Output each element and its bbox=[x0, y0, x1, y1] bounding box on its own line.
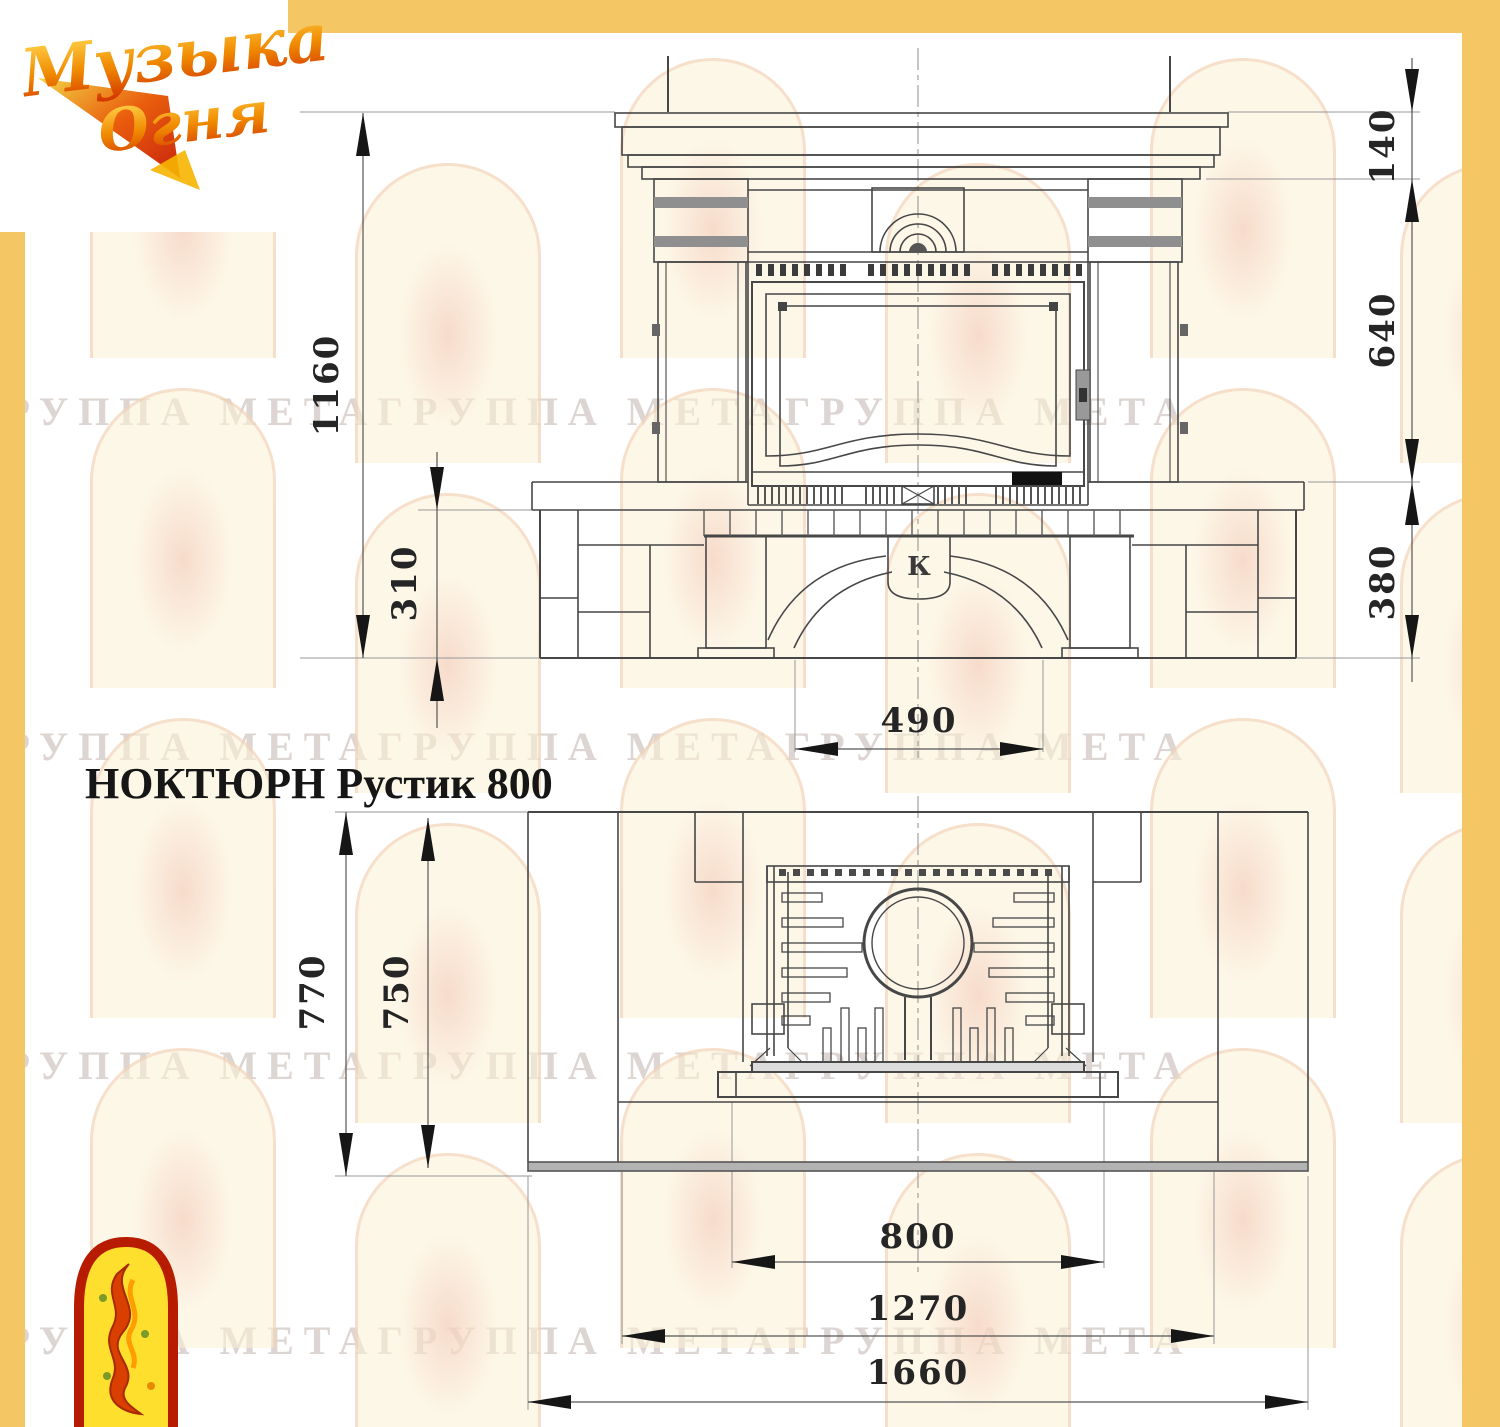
pilasters bbox=[652, 262, 1188, 482]
dim-inner-depth: 750 bbox=[377, 954, 417, 1031]
dim-opening-width: 490 bbox=[881, 701, 958, 741]
ash-lip bbox=[1012, 472, 1062, 485]
flame-arch-logo bbox=[73, 1236, 179, 1427]
dimension-arrows bbox=[339, 69, 1419, 1409]
flue-circle bbox=[864, 889, 972, 997]
keystone-mark: К bbox=[907, 552, 931, 582]
plan-front-step bbox=[528, 1162, 1308, 1171]
dimension-lines bbox=[346, 58, 1412, 1402]
dim-overall-width: 1660 bbox=[867, 1353, 970, 1393]
chimney-lines bbox=[668, 56, 1170, 112]
page: ГРУППА МЕТАГРУППА МЕТАГРУППА МЕТА ГРУППА… bbox=[0, 0, 1500, 1427]
dim-opening-zone-height: 640 bbox=[1363, 292, 1403, 369]
mantel-shelf bbox=[615, 113, 1228, 179]
dim-shelf-band-height: 140 bbox=[1363, 108, 1403, 185]
dim-firebox-width: 800 bbox=[880, 1217, 957, 1257]
dim-hearth-zone-height: 380 bbox=[1363, 544, 1403, 621]
drawing-title: НОКТЮРН Рустик 800 bbox=[85, 758, 553, 809]
dim-outer-depth: 770 bbox=[293, 954, 333, 1031]
frame-band-right bbox=[1462, 0, 1500, 1427]
dim-total-height: 1160 bbox=[307, 334, 347, 437]
frame-band-left bbox=[0, 228, 25, 1427]
dim-base-height: 310 bbox=[385, 545, 425, 622]
brand-logo: Музыка Огня bbox=[0, 0, 288, 232]
firebox-insert bbox=[748, 262, 1090, 505]
dim-hearth-width: 1270 bbox=[867, 1289, 970, 1329]
